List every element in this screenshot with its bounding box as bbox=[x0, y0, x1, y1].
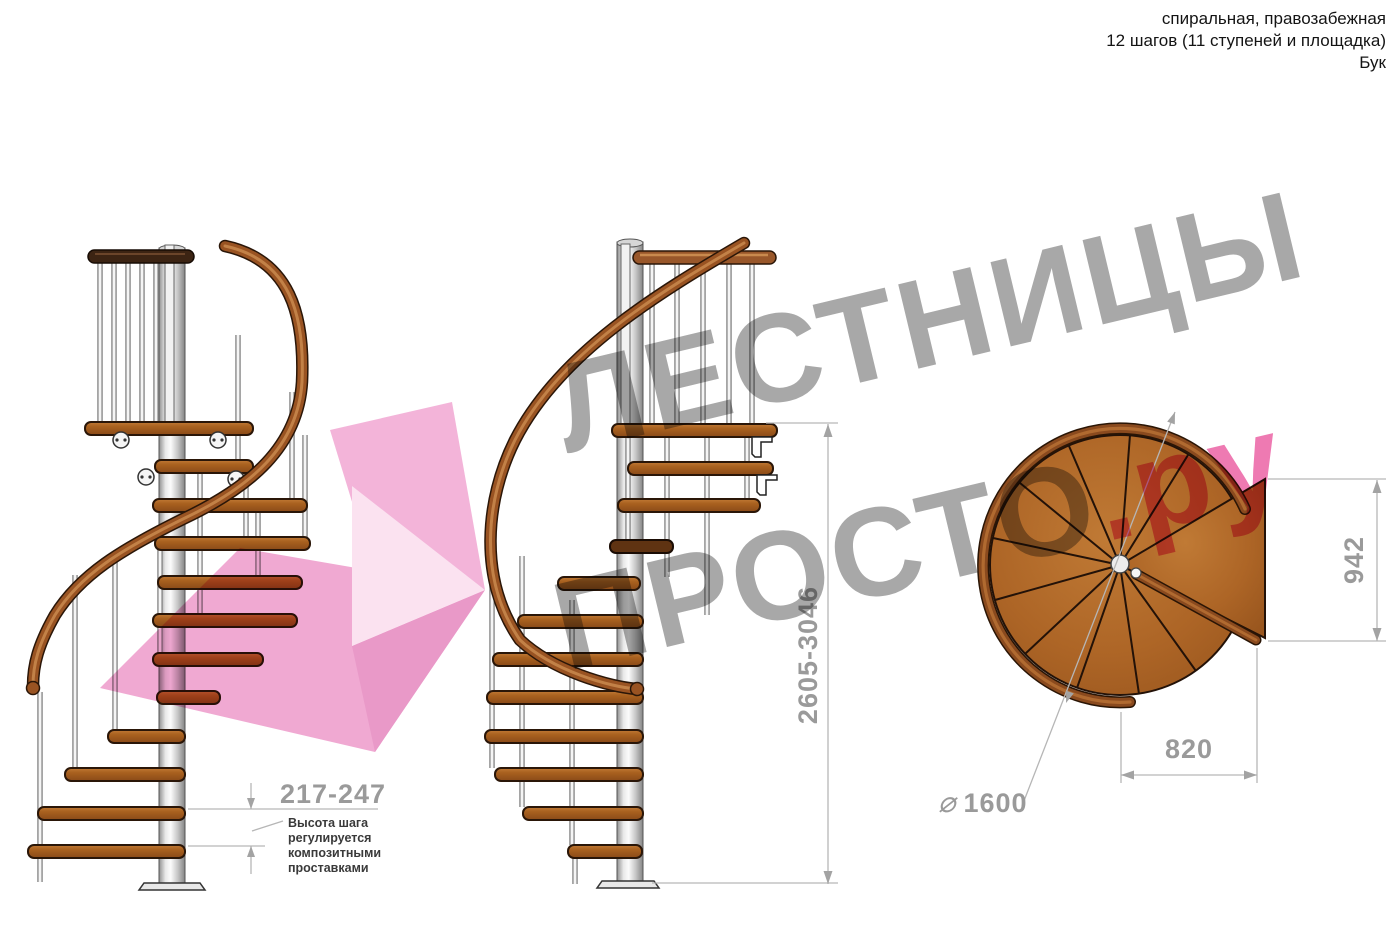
title-block: спиральная, правозабежная 12 шагов (11 с… bbox=[1106, 8, 1386, 74]
step bbox=[157, 691, 220, 704]
step bbox=[108, 730, 185, 743]
diameter-label: ⌀1600 bbox=[938, 787, 1028, 819]
middle-staircase-side-view bbox=[485, 239, 777, 888]
pole-base-flange bbox=[139, 883, 205, 890]
railing-post bbox=[165, 245, 174, 423]
handrail-end-cap bbox=[27, 682, 40, 695]
step-bracket bbox=[757, 475, 777, 495]
step bbox=[158, 576, 302, 589]
landing-guard-rail bbox=[88, 250, 194, 263]
staircase-drawing-page: 2605-3046 217-247 Высота шага регулирует… bbox=[0, 0, 1400, 951]
step-bracket bbox=[752, 437, 772, 457]
step bbox=[485, 730, 643, 743]
landing-span-value: 942 bbox=[1339, 536, 1369, 584]
step bbox=[153, 614, 297, 627]
technical-drawing-canvas: 2605-3046 217-247 Высота шага регулирует… bbox=[0, 0, 1400, 951]
step bbox=[28, 845, 185, 858]
step bbox=[568, 845, 642, 858]
step bbox=[495, 768, 643, 781]
step bbox=[65, 768, 185, 781]
dimension-landing-span: 942 bbox=[1268, 479, 1386, 641]
step bbox=[153, 499, 307, 512]
dimension-step-height: 217-247 Высота шага регулируется компози… bbox=[188, 779, 386, 875]
step-height-value: 217-247 bbox=[280, 779, 386, 809]
left-staircase-side-view bbox=[27, 245, 311, 890]
handrail-end-cap bbox=[631, 683, 644, 696]
step bbox=[38, 807, 185, 820]
plan-top-view bbox=[983, 428, 1265, 702]
tread-span-value: 820 bbox=[1165, 734, 1213, 764]
svg-text:регулируется: регулируется bbox=[288, 831, 371, 845]
step bbox=[558, 577, 640, 590]
material-line: Бук bbox=[1106, 52, 1386, 74]
landing-tread bbox=[85, 422, 253, 435]
step bbox=[518, 615, 643, 628]
svg-text:композитными: композитными bbox=[288, 846, 381, 860]
step bbox=[618, 499, 760, 512]
total-height-value: 2605-3046 bbox=[793, 586, 823, 724]
svg-text:проставками: проставками bbox=[288, 861, 369, 875]
step bbox=[610, 540, 673, 553]
step bbox=[155, 537, 310, 550]
railing-post bbox=[621, 244, 630, 425]
step bbox=[523, 807, 643, 820]
step bbox=[628, 462, 773, 475]
stair-type-line: спиральная, правозабежная bbox=[1106, 8, 1386, 30]
pole-base-flange bbox=[597, 881, 659, 888]
landing-tread bbox=[612, 424, 777, 437]
rail-post-top bbox=[1131, 568, 1141, 578]
step bbox=[153, 653, 263, 666]
steps-count-line: 12 шагов (11 ступеней и площадка) bbox=[1106, 30, 1386, 52]
step-height-note: Высота шага bbox=[288, 816, 369, 830]
